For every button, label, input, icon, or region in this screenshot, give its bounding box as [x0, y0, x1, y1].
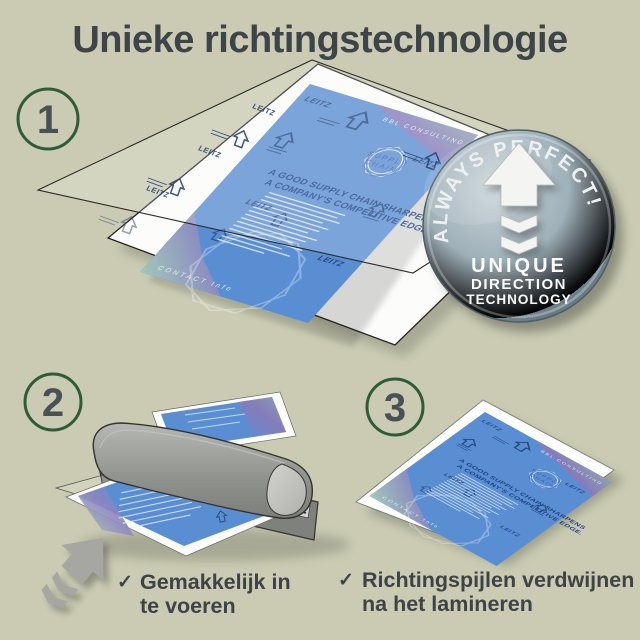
checklist-item-2-line-2: na het lamineren [362, 592, 533, 616]
checkmark-icon-1: ✓ [117, 572, 133, 593]
badge-caption-line-2: DIRECTION [471, 276, 567, 293]
checklist-item-1-line-2: te voeren [140, 594, 236, 618]
checklist-item-2-line-1: Richtingspijlen verdwijnen [362, 568, 634, 592]
checkmark-icon-2: ✓ [338, 570, 354, 591]
checklist-item-1-line-1: Gemakkelijk in [140, 570, 291, 594]
page-title: Unieke richtingstechnologie [72, 19, 567, 61]
step-number-2-label: 2 [42, 381, 64, 425]
badge-caption-line-1: UNIQUE [471, 255, 567, 277]
step-number-1-label: 1 [37, 98, 59, 142]
badge-caption-line-3: TECHNOLOGY [466, 292, 571, 307]
step-number-3-label: 3 [384, 386, 406, 430]
product-instruction-image: BBL CONSULTING LEITZ SUPPLY CHAIN LEITZ [0, 0, 640, 640]
